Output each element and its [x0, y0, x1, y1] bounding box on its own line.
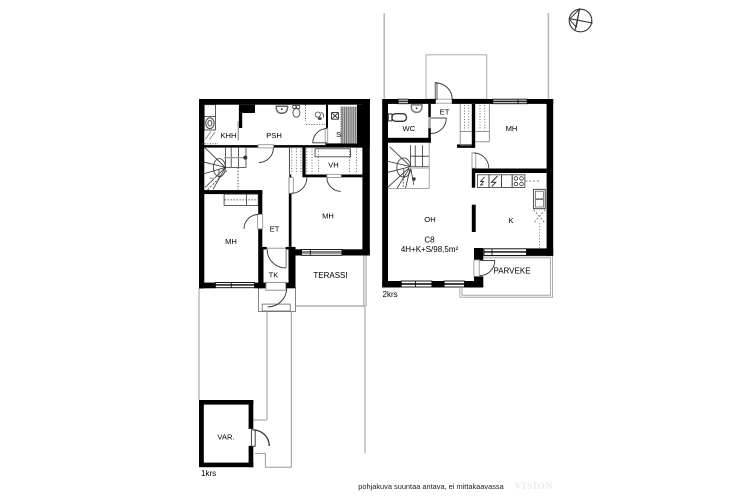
svg-text:C8: C8 — [424, 236, 435, 245]
svg-text:PARVEKE: PARVEKE — [493, 267, 530, 276]
svg-text:VAR.: VAR. — [217, 432, 234, 441]
svg-text:TK: TK — [269, 271, 279, 280]
svg-text:4H+K+S/98,5m²: 4H+K+S/98,5m² — [401, 245, 459, 254]
svg-text:MH: MH — [322, 212, 334, 221]
svg-text:K: K — [508, 216, 513, 225]
svg-text:pohjakuva suuntaa antava, ei m: pohjakuva suuntaa antava, ei mittakaavas… — [358, 482, 504, 491]
svg-text:OH: OH — [424, 215, 435, 224]
svg-text:ET: ET — [440, 108, 450, 117]
svg-text:1krs: 1krs — [201, 469, 216, 478]
svg-text:PSH: PSH — [266, 131, 282, 140]
svg-text:WC: WC — [402, 124, 415, 133]
svg-text:MH: MH — [225, 237, 237, 246]
svg-text:ET: ET — [270, 225, 280, 234]
svg-text:VH: VH — [328, 161, 339, 170]
svg-text:S: S — [336, 130, 341, 139]
svg-text:VISION: VISION — [515, 482, 554, 492]
svg-text:KHH: KHH — [220, 131, 236, 140]
svg-text:2krs: 2krs — [383, 290, 398, 299]
svg-text:TERASSI: TERASSI — [313, 271, 347, 280]
svg-text:MH: MH — [506, 124, 518, 133]
